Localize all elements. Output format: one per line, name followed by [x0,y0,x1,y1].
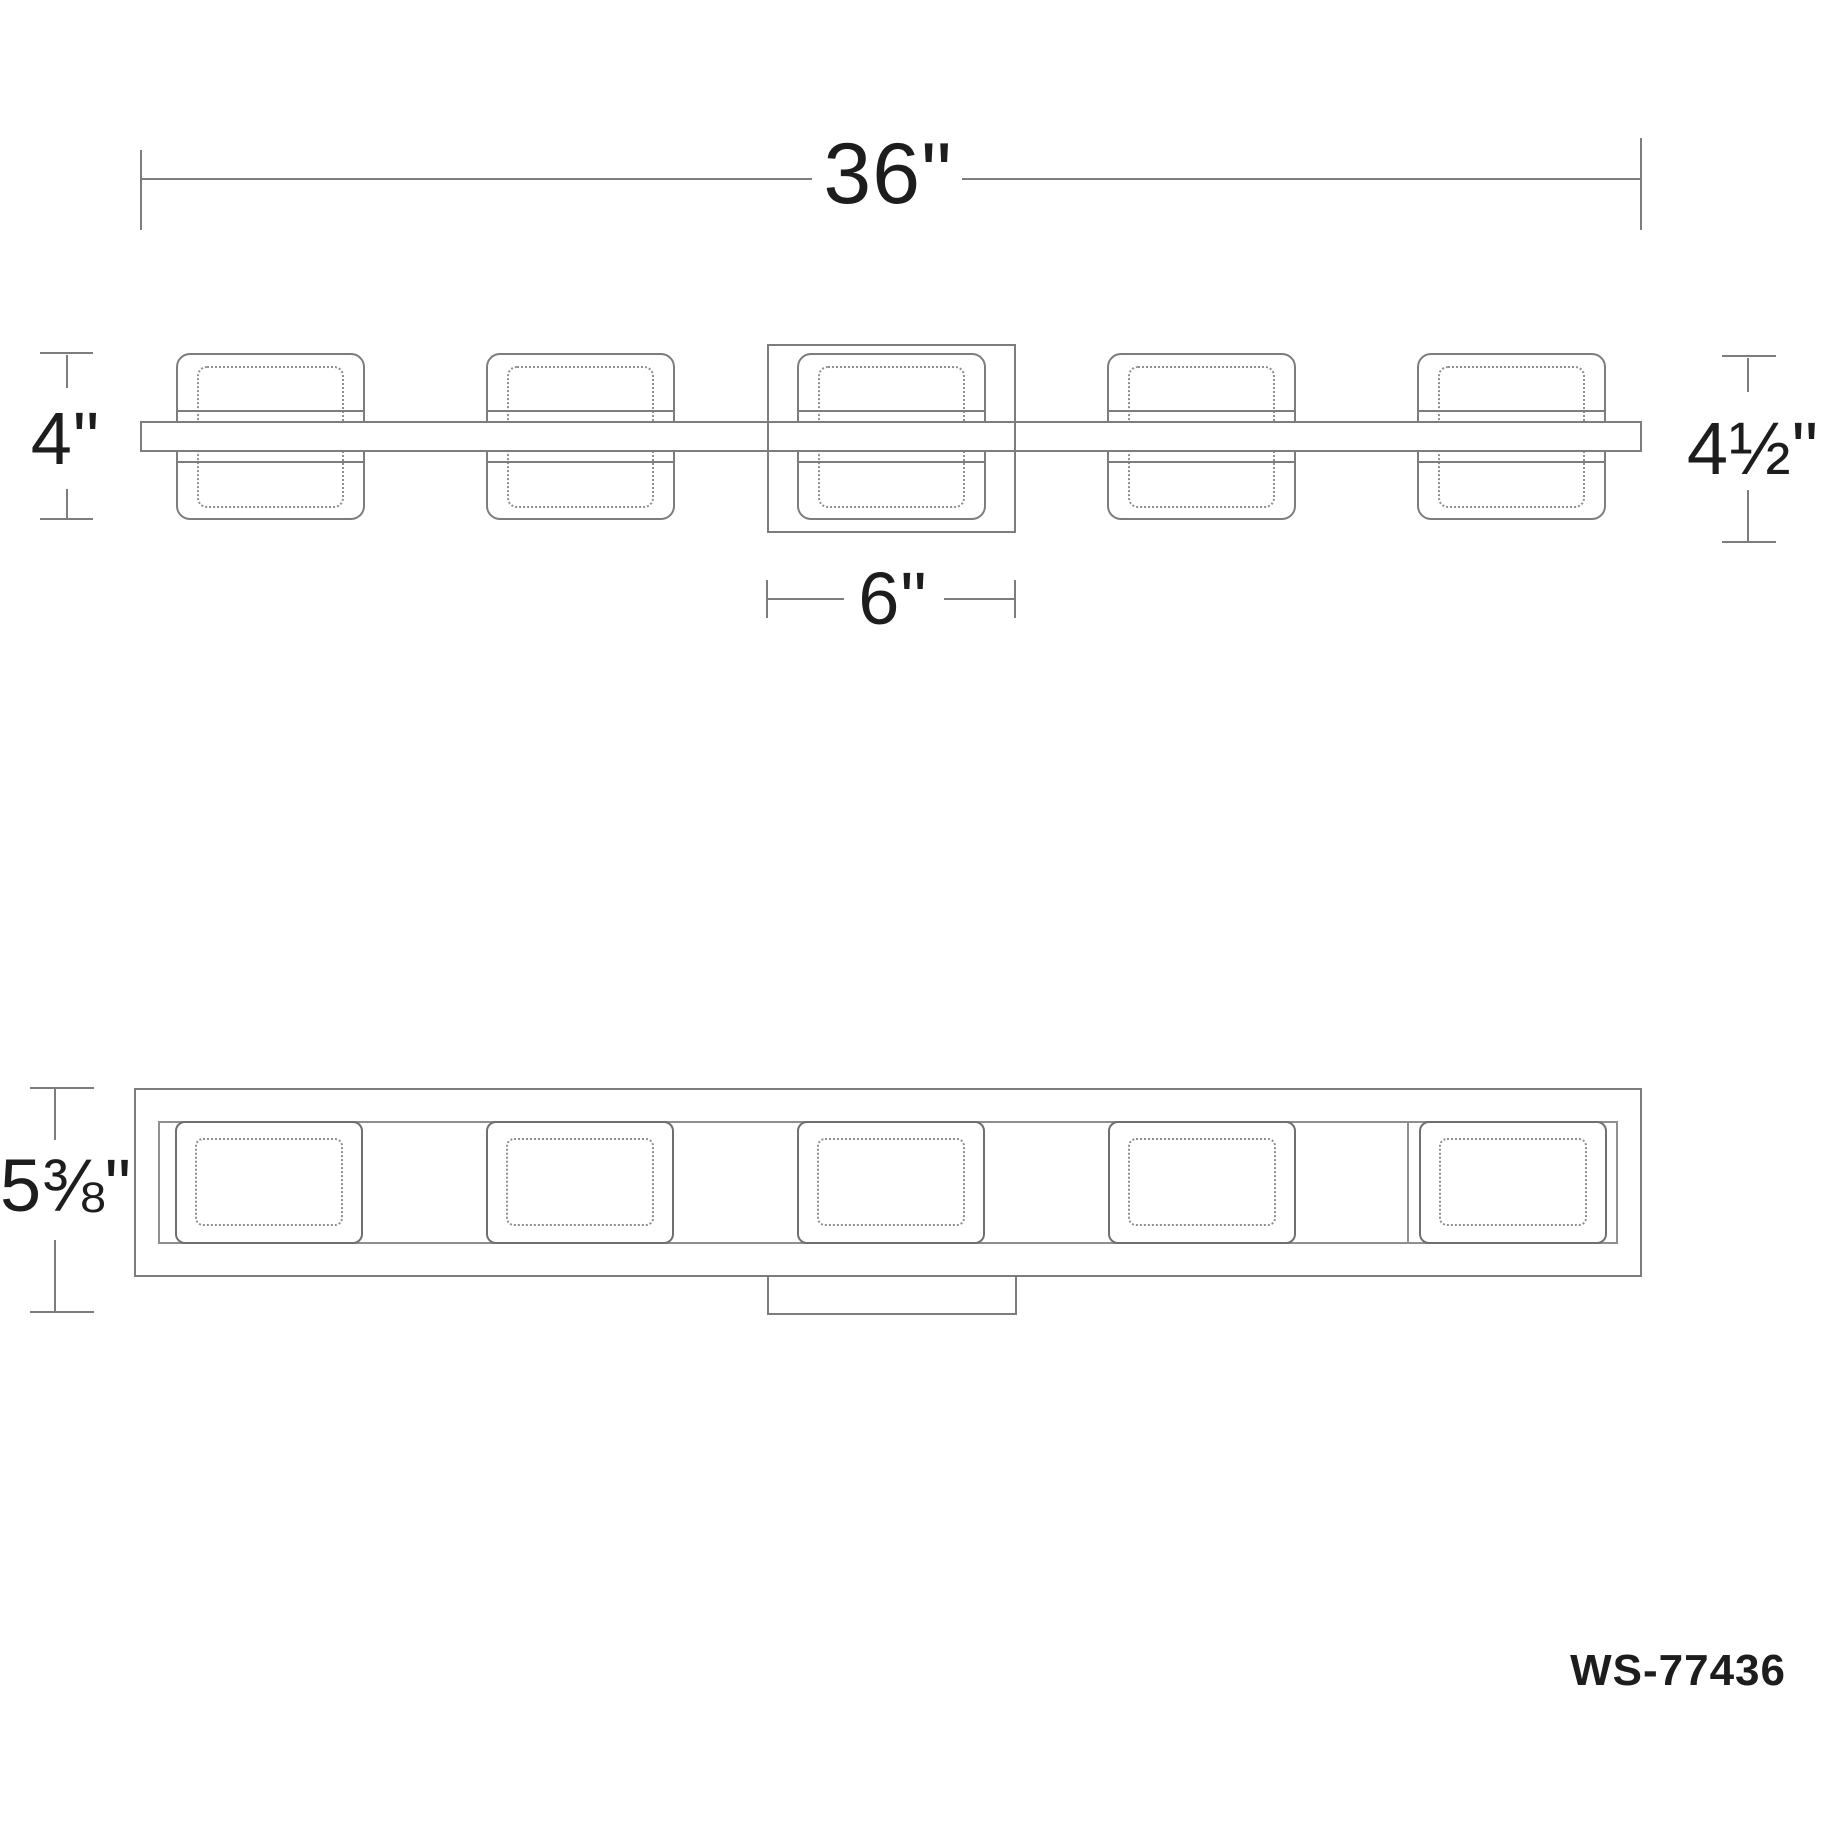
dim-canopy-width-label: 6" [823,558,963,638]
dim-36-line-right [962,178,1642,180]
front-view-light-module [175,1121,363,1244]
dim-538-tick-bottom [30,1311,94,1313]
front-mounting-plate [767,1277,1017,1315]
front-view-diffuser-dashed-outline [506,1138,654,1226]
dim-36-tick-right [1640,138,1642,230]
dim-45-line-lower [1747,490,1749,541]
dim-36-line-left [141,178,812,180]
technical-drawing-canvas: 36" 4" 4½" 6" [0,0,1824,1824]
dim-45-tick-top [1722,355,1776,357]
dim-538-tick-top [30,1087,94,1089]
dim-overall-width-label: 36" [788,126,988,222]
front-view-light-module [486,1121,674,1244]
dim-538-line-upper [54,1089,56,1140]
front-view-light-module [1419,1121,1607,1244]
dim-6-tick-right [1014,580,1016,618]
product-code-label: WS-77436 [1400,1646,1786,1696]
dim-45-tick-bottom [1722,541,1776,543]
dim-4-line-lower [66,489,68,519]
front-view-diffuser-dashed-outline [1128,1138,1276,1226]
dim-538-line-lower [54,1240,56,1311]
front-view-light-module [797,1121,985,1244]
dim-extension-label: 4½" [1682,408,1824,488]
front-view-diffuser-dashed-outline [195,1138,343,1226]
dim-4-tick-top [40,352,93,354]
dim-36-tick-left [140,150,142,230]
front-view-diffuser-dashed-outline [1439,1138,1587,1226]
dim-overall-height-label: 5⅜" [0,1145,132,1225]
front-view-diffuser-dashed-outline [817,1138,965,1226]
front-housing-seam-line [1407,1121,1409,1244]
dim-4-line-upper [66,355,68,388]
dim-45-line-upper [1747,358,1749,392]
center-canopy-outline [767,344,1016,533]
front-view-light-module [1108,1121,1296,1244]
dim-shade-depth-label: 4" [8,398,123,478]
